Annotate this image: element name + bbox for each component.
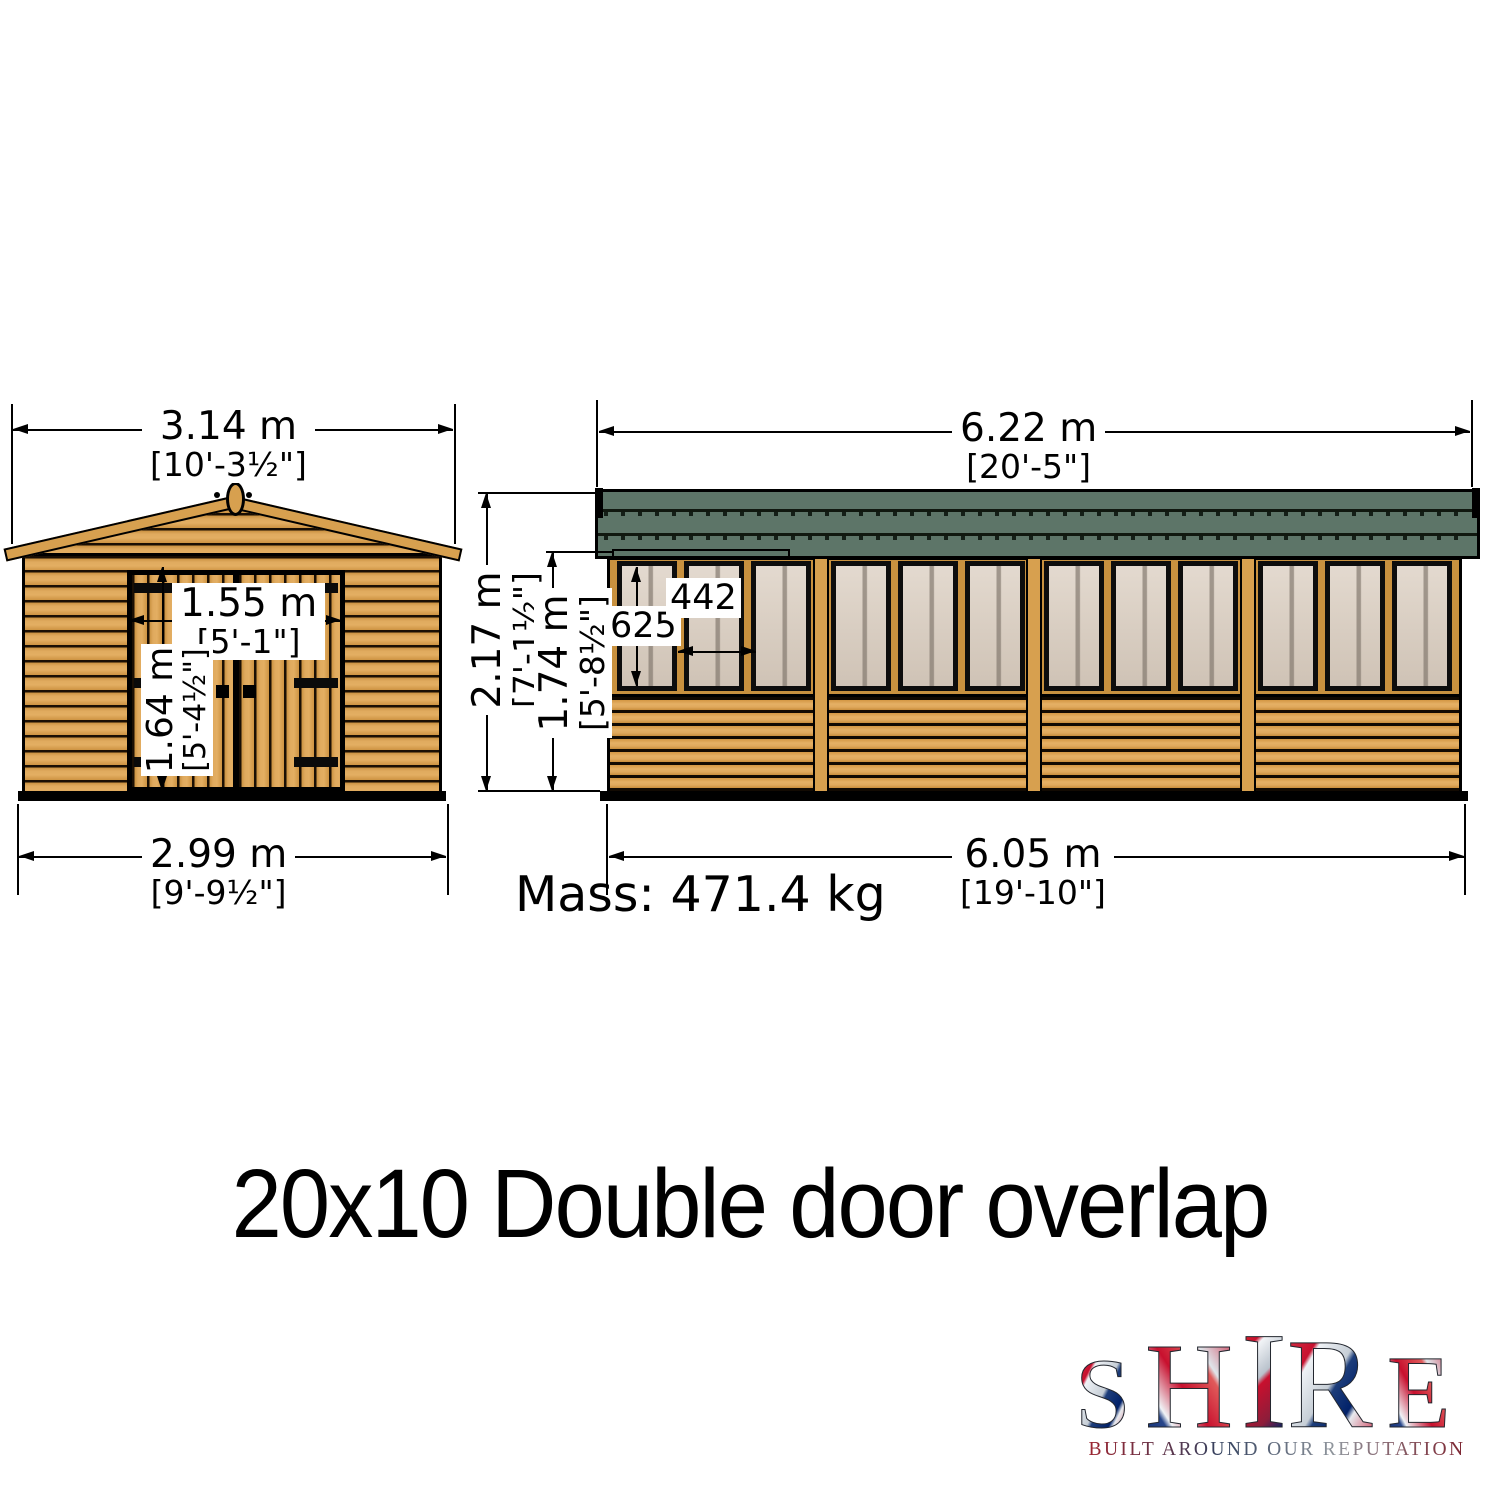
window bbox=[1111, 561, 1171, 691]
logo-letter-i: I bbox=[1241, 1304, 1287, 1457]
mass-label: Mass: 471.4 kg bbox=[515, 866, 886, 923]
window-bracket-drop bbox=[788, 549, 790, 557]
arrow-right-icon bbox=[431, 851, 446, 861]
arrow-left-icon bbox=[609, 851, 624, 861]
dim-door-height: 1.64 m [5'-4½"] bbox=[141, 644, 213, 776]
window-glass bbox=[1330, 566, 1380, 686]
window-glass bbox=[1116, 566, 1166, 686]
shed-dimension-diagram: 3.14 m [10'-3½"] 1.55 m [5'-1"] 1.64 m [… bbox=[0, 0, 1500, 1500]
dim-metric: 3.14 m bbox=[160, 407, 297, 448]
panel-separator bbox=[813, 559, 829, 793]
door-lock-right bbox=[243, 685, 256, 698]
dim-front-overall-width: 3.14 m [10'-3½"] bbox=[142, 406, 315, 483]
front-header-band bbox=[25, 556, 439, 570]
front-finial-dot-left bbox=[214, 492, 220, 498]
front-finial-dot-right bbox=[246, 492, 252, 498]
roof-end-trim-right bbox=[1472, 488, 1480, 518]
front-wall-left-cladding bbox=[25, 570, 127, 792]
diagram-title: 20x10 Double door overlap bbox=[53, 1148, 1448, 1260]
arrow-up-icon bbox=[547, 552, 557, 567]
ext-line bbox=[478, 790, 600, 792]
dim-imperial: [5'-4½"] bbox=[180, 648, 212, 772]
dim-imperial: [10'-3½"] bbox=[150, 448, 307, 482]
window bbox=[751, 561, 811, 691]
window-glass bbox=[1049, 566, 1099, 686]
arrow-up-icon bbox=[631, 567, 641, 582]
window bbox=[1258, 561, 1318, 691]
dim-metric: 1.74 m bbox=[535, 594, 576, 731]
window bbox=[831, 561, 891, 691]
ext-line bbox=[1464, 804, 1466, 895]
logo-letter-h: H bbox=[1145, 1319, 1233, 1454]
dim-side-length: 6.22 m [20'-5"] bbox=[952, 408, 1105, 485]
logo-letter-s: S bbox=[1075, 1338, 1131, 1449]
window-glass bbox=[1397, 566, 1447, 686]
window bbox=[1178, 561, 1238, 691]
arrow-up-icon bbox=[481, 493, 491, 508]
arrow-up-icon bbox=[157, 567, 167, 582]
ext-line bbox=[596, 400, 598, 487]
ext-line bbox=[17, 804, 19, 895]
front-wall-right-cladding bbox=[345, 570, 439, 792]
roof-felt-dots bbox=[604, 536, 1471, 540]
dim-imperial: [5'-8½"] bbox=[576, 595, 611, 731]
window bbox=[1392, 561, 1452, 691]
door-hinge bbox=[294, 757, 338, 767]
window-glass bbox=[970, 566, 1020, 686]
window-glass bbox=[836, 566, 886, 686]
window-glass bbox=[756, 566, 806, 686]
arrow-right-icon bbox=[741, 646, 756, 656]
arrow-right-icon bbox=[1455, 426, 1470, 436]
arrow-right-icon bbox=[438, 424, 453, 434]
shire-logo: S H I R E BUILT AROUND OUR REPUTATION bbox=[1075, 1272, 1480, 1467]
dim-front-base-width: 2.99 m [9'-9½"] bbox=[142, 834, 295, 911]
dim-eaves-height: 1.74 m [5'-8½"] bbox=[534, 588, 612, 738]
arrow-left-icon bbox=[599, 426, 614, 436]
panel-separator bbox=[1026, 559, 1042, 793]
window-bracket-line bbox=[612, 549, 790, 551]
arrow-left-icon bbox=[13, 424, 28, 434]
logo-tagline: BUILT AROUND OUR REPUTATION bbox=[1089, 1439, 1466, 1460]
front-ground-bar bbox=[18, 791, 446, 801]
dim-metric: 1.55 m bbox=[180, 584, 317, 625]
logo-letter-r: R bbox=[1287, 1313, 1373, 1455]
window bbox=[965, 561, 1025, 691]
dim-metric: 6.05 m bbox=[964, 835, 1101, 876]
arrow-left-icon bbox=[19, 851, 34, 861]
front-roof-finial bbox=[226, 482, 245, 516]
panel-separator bbox=[1240, 559, 1256, 793]
window-glass bbox=[903, 566, 953, 686]
dim-imperial: [19'-10"] bbox=[960, 876, 1106, 910]
dim-metric: 2.99 m bbox=[150, 835, 287, 876]
arrow-down-icon bbox=[631, 671, 641, 686]
dim-imperial: [20'-5"] bbox=[966, 450, 1091, 484]
logo-letter-e: E bbox=[1387, 1335, 1451, 1450]
window bbox=[1325, 561, 1385, 691]
arrow-left-icon bbox=[678, 646, 693, 656]
door-hinge bbox=[294, 678, 338, 688]
window bbox=[898, 561, 958, 691]
ext-line bbox=[447, 804, 449, 895]
ext-line bbox=[454, 404, 456, 544]
ext-line bbox=[478, 492, 600, 494]
dim-value: 442 bbox=[670, 580, 737, 616]
roof-felt-dots bbox=[604, 512, 1471, 516]
side-ground-bar bbox=[600, 791, 1468, 801]
arrow-down-icon bbox=[481, 776, 491, 791]
dim-side-base-length: 6.05 m [19'-10"] bbox=[952, 834, 1114, 911]
arrow-right-icon bbox=[1449, 851, 1464, 861]
window-glass bbox=[1183, 566, 1233, 686]
arrow-left-icon bbox=[129, 615, 144, 625]
dim-metric: 2.17 m bbox=[468, 571, 509, 708]
arrow-down-icon bbox=[547, 776, 557, 791]
ext-line bbox=[1471, 400, 1473, 487]
door-lock-left bbox=[216, 685, 229, 698]
dim-window-width: 442 bbox=[666, 578, 741, 618]
arrow-right-icon bbox=[326, 615, 341, 625]
arrow-down-icon bbox=[157, 776, 167, 791]
window bbox=[1044, 561, 1104, 691]
dim-metric: 6.22 m bbox=[960, 409, 1097, 450]
dim-metric: 1.64 m bbox=[142, 647, 180, 774]
dim-imperial: [9'-9½"] bbox=[151, 876, 287, 910]
window-glass bbox=[1263, 566, 1313, 686]
